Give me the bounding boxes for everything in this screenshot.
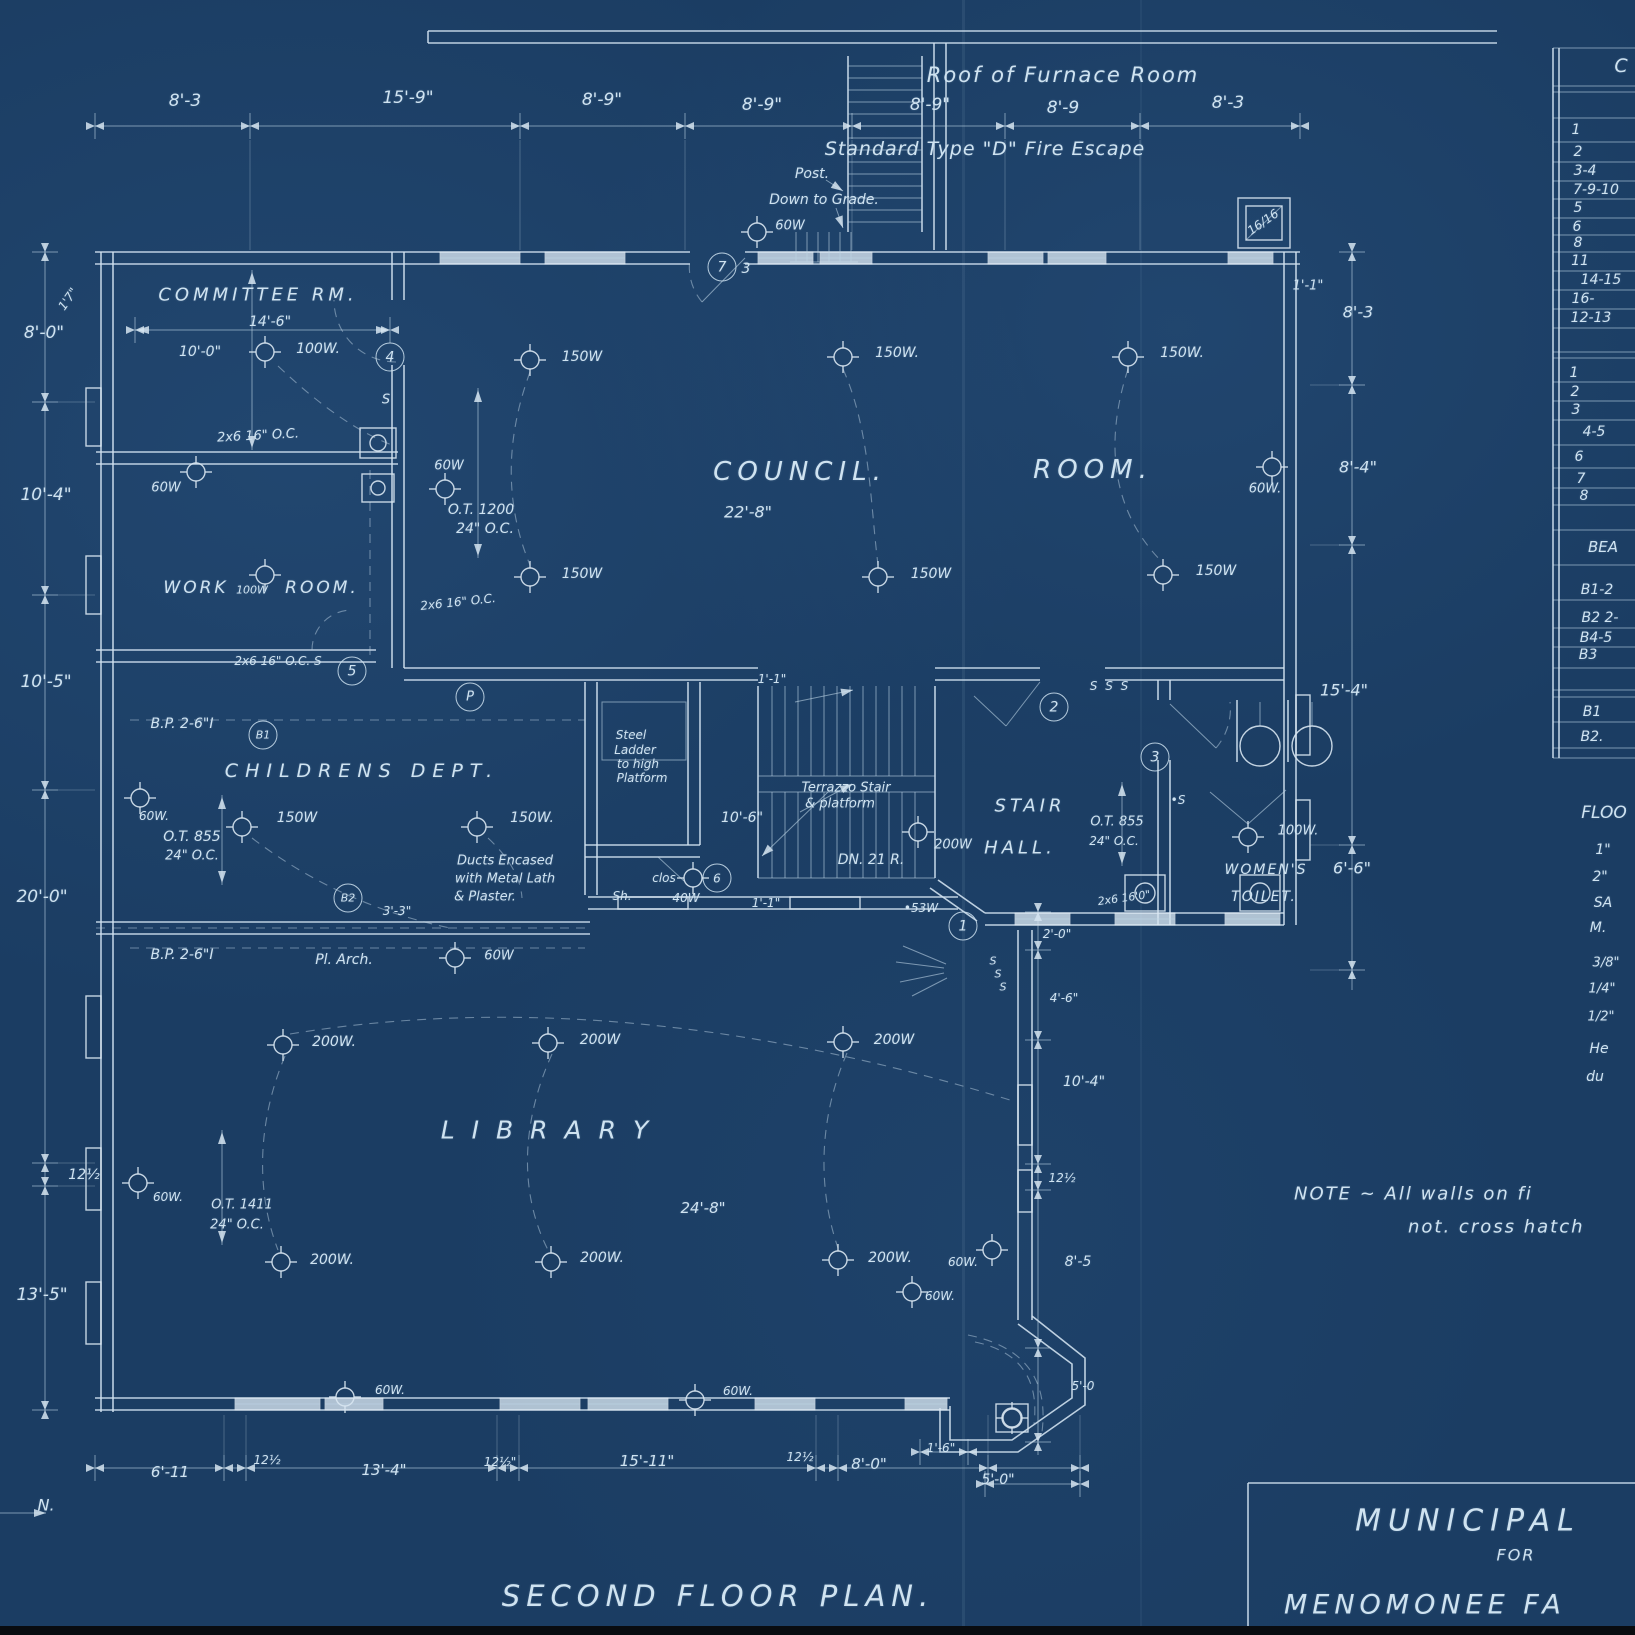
scan-edge xyxy=(0,1626,1635,1635)
blueprint-page: 8'-315'-9"8'-9"8'-9"8'-9"8'-98'-3Roof of… xyxy=(0,0,1635,1635)
blueprint-linework xyxy=(0,0,1635,1635)
